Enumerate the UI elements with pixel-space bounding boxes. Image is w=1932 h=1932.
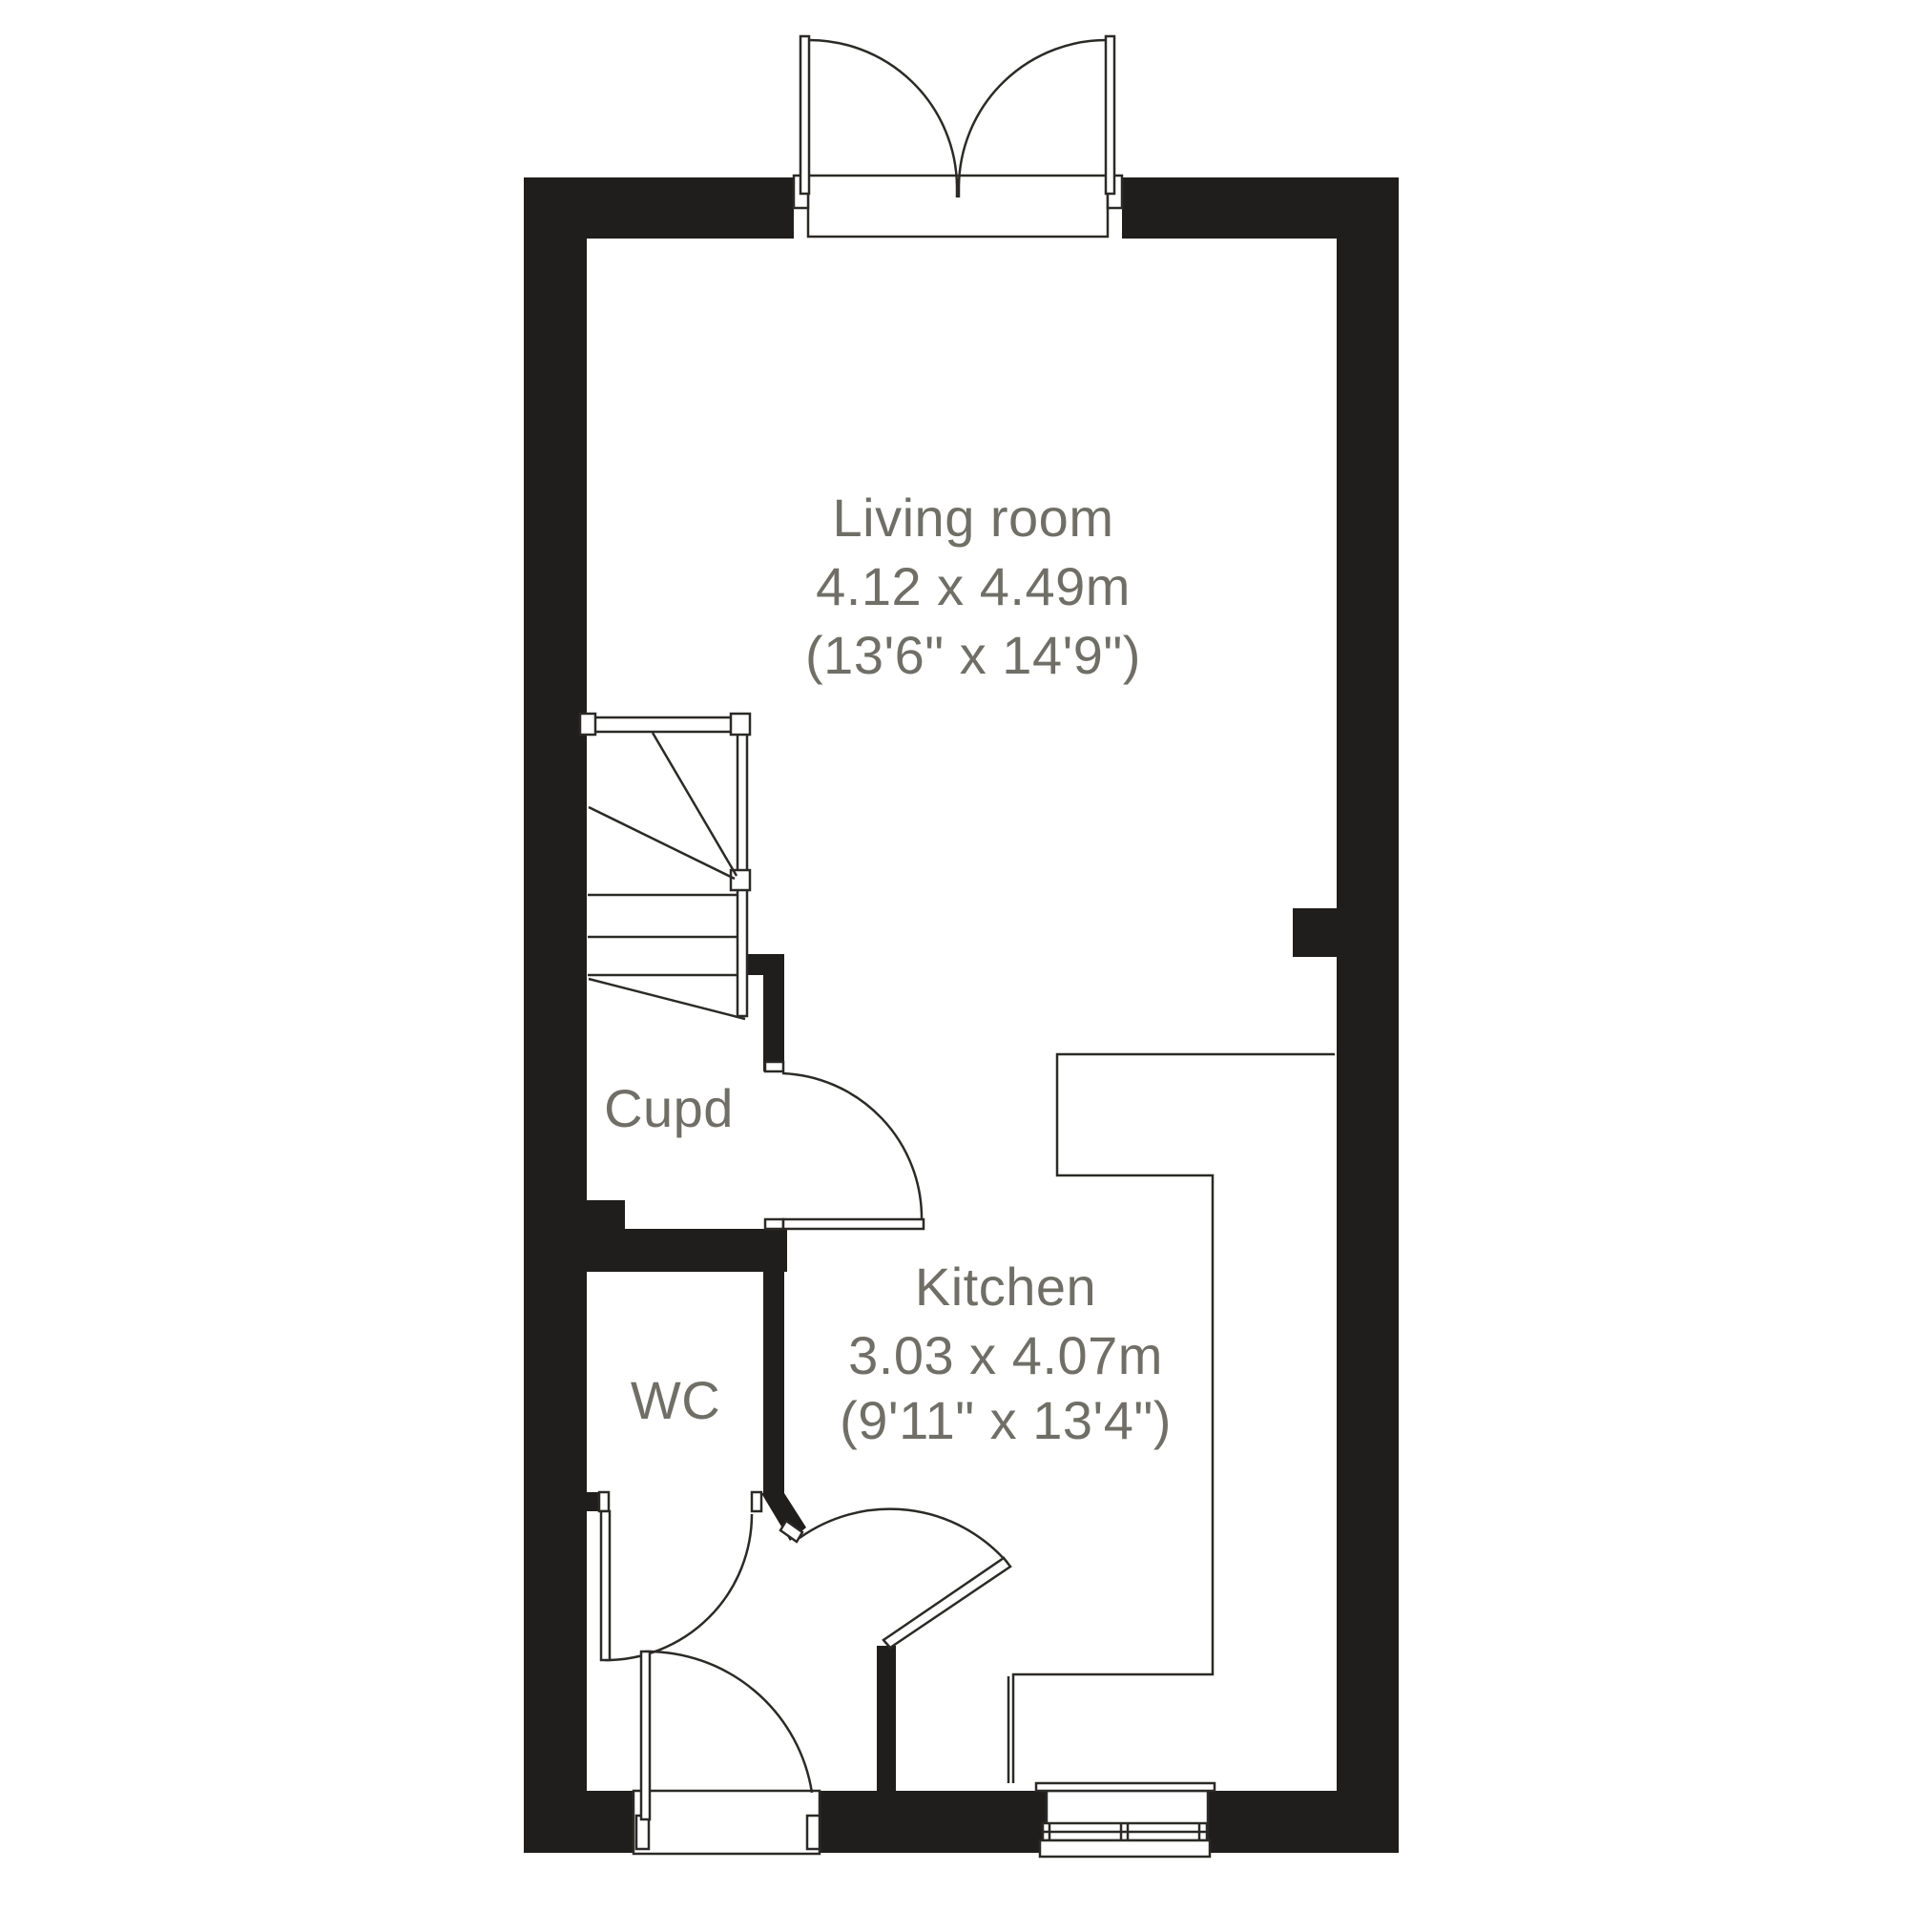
kitchen-door-swing xyxy=(800,1509,1008,1563)
stair-post-top-left xyxy=(580,714,595,735)
french-door-swing-left xyxy=(805,40,957,197)
wall-wc-right xyxy=(763,1272,784,1493)
wall-kitchen-hall xyxy=(877,1646,896,1791)
wall-bottom-right xyxy=(1208,1791,1399,1853)
cupboard-door-leaf xyxy=(783,1219,924,1229)
wall-hall-upper xyxy=(763,954,784,1071)
floor-plan: Living room 4.12 x 4.49m (13'6" x 14'9")… xyxy=(0,0,1932,1932)
cupboard-label: Cupd xyxy=(604,1078,734,1138)
living-room-size-metric: 4.12 x 4.49m xyxy=(816,556,1131,616)
window-outer-sill xyxy=(1040,1840,1210,1857)
wc-door-frame-left xyxy=(599,1492,609,1511)
stair-winder-1 xyxy=(653,733,737,876)
french-door-swing-right xyxy=(959,40,1111,197)
wall-bottom-left xyxy=(524,1791,634,1853)
kitchen-size-imperial: (9'11" x 13'4") xyxy=(840,1390,1172,1450)
wc-door-swing xyxy=(605,1514,752,1660)
wc-door-leaf xyxy=(601,1511,610,1660)
stair-bottom-edge xyxy=(589,979,745,1019)
cupboard-door-frame-bottom xyxy=(765,1219,783,1229)
cupboard-door-frame-top xyxy=(765,1062,783,1071)
kitchen-door-leaf xyxy=(883,1558,1010,1648)
french-door-leaf-right xyxy=(1106,36,1114,194)
entrance-door-swing xyxy=(645,1652,812,1793)
entrance-threshold xyxy=(634,1791,820,1854)
french-doors xyxy=(794,36,1122,237)
kitchen-door xyxy=(780,1509,1010,1648)
wall-cupboard-bottom xyxy=(587,1229,787,1272)
window-inner-lip xyxy=(1036,1783,1215,1791)
room-labels: Living room 4.12 x 4.49m (13'6" x 14'9")… xyxy=(604,488,1172,1450)
stair-winder-2 xyxy=(589,807,735,879)
kitchen-window xyxy=(1036,1783,1215,1857)
floor-plan-drawing: Living room 4.12 x 4.49m (13'6" x 14'9")… xyxy=(0,0,1932,1932)
living-room-label: Living room xyxy=(833,488,1114,548)
cupboard-door-swing xyxy=(782,1073,922,1219)
living-room-size-imperial: (13'6" x 14'9") xyxy=(805,625,1141,685)
french-door-leaf-left xyxy=(800,36,809,194)
walls xyxy=(524,177,1399,1853)
wc-label: WC xyxy=(631,1370,720,1430)
kitchen-label: Kitchen xyxy=(915,1257,1096,1317)
entrance-door-frame-latch xyxy=(807,1816,820,1849)
stair-rail-top xyxy=(585,717,747,732)
stair-post-top-right xyxy=(731,714,750,735)
staircase xyxy=(580,714,750,1019)
kitchen-size-metric: 3.03 x 4.07m xyxy=(848,1325,1163,1385)
wall-left xyxy=(524,177,587,1853)
wall-right-pier xyxy=(1293,908,1337,957)
entrance-door-leaf xyxy=(641,1652,650,1819)
wall-top-left xyxy=(587,177,794,239)
wall-bottom-middle xyxy=(820,1791,1047,1853)
wc-door-frame-right xyxy=(752,1492,761,1511)
wall-wc-jamb xyxy=(587,1492,599,1511)
entrance-door xyxy=(634,1652,820,1854)
wall-right xyxy=(1337,177,1399,1853)
cupboard-door xyxy=(765,1062,924,1229)
wc-door xyxy=(599,1492,761,1660)
